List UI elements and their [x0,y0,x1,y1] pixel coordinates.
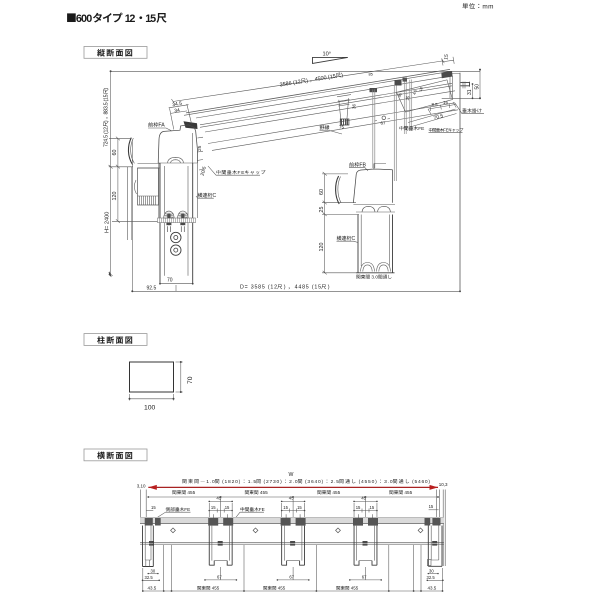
svg-text:34: 34 [174,108,181,115]
svg-text:100: 100 [144,405,156,412]
svg-text:2.5: 2.5 [331,479,340,485]
svg-text:): ) [328,285,330,291]
svg-text:600: 600 [76,13,92,25]
svg-text:): ) [104,120,110,122]
svg-text:30: 30 [151,569,156,574]
svg-text:(3640): (3640) [305,479,324,485]
svg-text:15: 15 [225,505,230,510]
svg-text:92.5: 92.5 [147,286,157,292]
svg-text:15: 15 [211,505,216,510]
svg-text:16: 16 [443,100,448,105]
svg-text:15: 15 [283,505,288,510]
svg-text:): ) [284,285,286,291]
svg-text:75: 75 [339,125,345,130]
svg-text:): ) [104,88,110,90]
svg-text:67: 67 [362,574,367,579]
svg-text:67: 67 [381,121,387,126]
svg-text:2.0: 2.0 [289,479,298,485]
svg-text:3586 (12: 3586 (12 [279,79,301,88]
svg-text:70: 70 [167,278,173,284]
svg-text:(4550): (4550) [359,479,378,485]
svg-text:36: 36 [352,103,357,109]
svg-text:43.5: 43.5 [428,586,437,591]
svg-text:45: 45 [216,496,221,501]
svg-text:883.5 (15: 883.5 (15 [104,94,110,114]
svg-text:15: 15 [429,504,434,509]
svg-text:10°: 10° [323,51,331,57]
svg-text:1.5: 1.5 [248,479,257,485]
svg-text:15: 15 [370,505,375,510]
svg-text:20.5: 20.5 [200,166,208,177]
svg-text:455: 455 [351,586,359,591]
svg-text:FE: FE [443,128,449,133]
svg-text:FE: FE [184,507,190,512]
svg-text:60: 60 [319,189,325,195]
svg-text:724.5 (12: 724.5 (12 [104,127,110,147]
svg-text:31: 31 [467,89,473,95]
svg-text:(1820): (1820) [222,479,241,485]
svg-text:3.0: 3.0 [371,275,378,280]
svg-text:43.5: 43.5 [148,586,157,591]
svg-text:70: 70 [187,376,194,384]
svg-text:32.5: 32.5 [145,575,154,580]
svg-text:10,3: 10,3 [439,482,448,487]
svg-text:50: 50 [475,84,481,90]
svg-text:3,10: 3,10 [137,484,146,489]
svg-text:12: 12 [125,13,136,25]
svg-text:H= 2400: H= 2400 [105,212,111,233]
svg-text:85: 85 [369,72,373,77]
svg-text:15: 15 [145,13,156,25]
svg-text:455: 455 [278,586,286,591]
svg-text:45: 45 [361,496,366,501]
svg-text:3.0: 3.0 [384,479,393,485]
svg-text:30: 30 [429,569,434,574]
svg-text:25: 25 [197,145,203,151]
svg-text:8.5: 8.5 [432,102,439,107]
svg-text:FA: FA [158,123,165,129]
svg-text:67: 67 [289,574,294,579]
svg-text:32.5: 32.5 [427,575,436,580]
svg-text:mm: mm [482,3,493,10]
svg-text:4485 (15: 4485 (15 [295,285,322,291]
svg-text:455: 455 [404,490,412,495]
svg-text:D= 3585 (12: D= 3585 (12 [240,285,277,291]
svg-text:4500 (15: 4500 (15 [314,74,336,83]
svg-text:67: 67 [217,574,222,579]
svg-text:455: 455 [332,490,340,495]
svg-text:120: 120 [112,192,118,201]
svg-text:120: 120 [319,243,325,252]
svg-text:45: 45 [289,496,294,501]
svg-text:25: 25 [319,207,325,213]
svg-text:15: 15 [151,505,156,510]
svg-text:15: 15 [443,54,450,61]
svg-text:1.0: 1.0 [206,479,215,485]
svg-text:4.5: 4.5 [413,89,418,95]
svg-text:FE: FE [418,126,424,132]
svg-text:455: 455 [187,490,195,495]
svg-text:(2730): (2730) [264,479,283,485]
svg-text:15: 15 [297,505,302,510]
svg-text:W: W [289,472,294,478]
svg-text:70.5: 70.5 [433,113,444,121]
svg-text:60: 60 [112,150,118,156]
svg-text:455: 455 [212,586,220,591]
svg-text:15: 15 [356,505,361,510]
svg-text:FE: FE [259,507,265,512]
svg-text:455: 455 [260,490,268,495]
svg-text:18: 18 [419,87,424,92]
svg-text:(5460): (5460) [412,479,430,485]
